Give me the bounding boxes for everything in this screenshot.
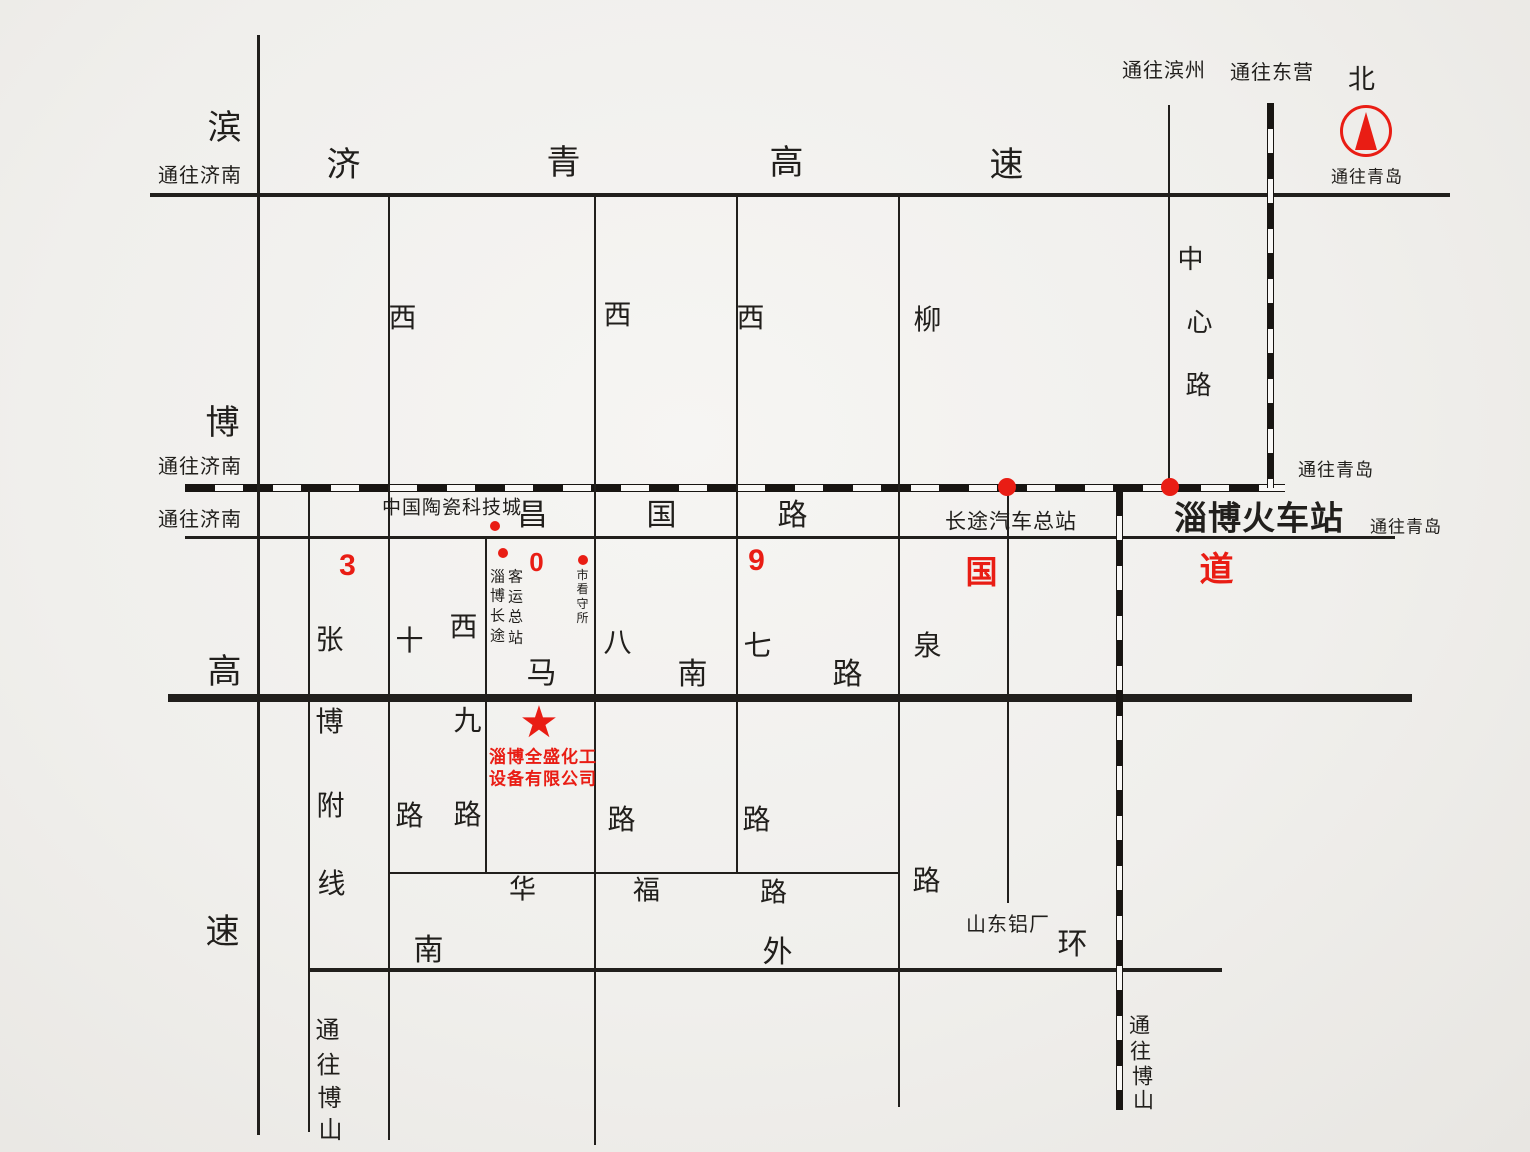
bus-station-street	[1007, 488, 1009, 903]
to-boshan-right-bo: 博	[1132, 1067, 1154, 1088]
xiba-road-char-ba: 八	[603, 629, 632, 657]
jiqing-expwy-char-gao: 高	[770, 146, 805, 180]
company-location-star: ★	[519, 701, 558, 745]
liuquan-road-char-lu: 路	[912, 867, 941, 895]
liuquan-road	[898, 195, 900, 1107]
zhongxin-road-char-lu: 路	[1185, 372, 1212, 398]
route309-digit-0: 0	[529, 549, 544, 575]
to-boshan-left-wang: 往	[317, 1054, 342, 1078]
to-qingdao-changguo: 通往青岛	[1370, 519, 1442, 536]
jiqing-expwy-char-su: 速	[990, 148, 1025, 182]
xijiu-road-char-xi: 西	[449, 613, 478, 641]
route309-digit-9: 9	[748, 546, 766, 576]
zibo-coach-col1-tu: 途	[490, 629, 506, 644]
xijiu-road-char-jiu: 九	[453, 707, 482, 735]
xiba-road	[594, 195, 596, 1145]
ring-road-char-huan: 环	[1058, 930, 1089, 960]
zhangbo-char-xian: 线	[317, 870, 346, 898]
company-name-line1: 淄博全盛化工	[489, 749, 597, 766]
xijiu-road	[485, 537, 487, 873]
railway-north-branch	[1267, 103, 1274, 488]
jiqing-expwy-char-ji: 济	[327, 148, 362, 182]
zhongxin-road-char-zhong: 中	[1177, 246, 1204, 272]
north-char: 北	[1348, 67, 1376, 94]
company-name-line2: 设备有限公司	[489, 771, 597, 788]
to-boshan-right-shan: 山	[1133, 1091, 1155, 1112]
changguo-road-char-lu: 路	[778, 501, 809, 531]
compass-north-needle-icon	[1355, 112, 1377, 150]
liuquan-road-char-quan: 泉	[913, 632, 942, 660]
ring-road-char-nan: 南	[414, 936, 445, 966]
changguo-road-char-chang: 昌	[518, 501, 549, 531]
to-boshan-right-tong: 通	[1129, 1016, 1151, 1037]
zhangbo-char-fu: 附	[316, 792, 345, 820]
to-binzhou: 通往滨州	[1122, 61, 1206, 81]
to-qingdao-railway: 通往青岛	[1298, 461, 1374, 479]
manan-road-thick	[168, 694, 1412, 702]
huafu-road-char-fu: 福	[633, 878, 661, 905]
zibo-coach-col2-ke: 客	[508, 570, 524, 585]
binbo-expwy-char-bin: 滨	[208, 111, 243, 145]
binbo-expwy-char-su: 速	[206, 915, 241, 949]
ring-road-char-wai: 外	[763, 938, 794, 968]
zibo-coach-col1-zi: 淄	[490, 570, 506, 585]
jiqing-expwy-char-qing: 青	[547, 146, 582, 180]
railway-station-junction-dot	[1161, 478, 1179, 496]
detention-house-shi: 市	[576, 569, 589, 581]
xishi-road-char-xi: 西	[388, 304, 417, 332]
zhangbo-char-zhang: 张	[315, 626, 344, 654]
xiqi-road-char-xi: 西	[736, 304, 765, 332]
coach-terminal-dot	[498, 548, 508, 558]
to-jinan-changguo: 通往济南	[158, 510, 242, 530]
jiqing-expressway	[150, 193, 1450, 197]
detention-house-shou: 守	[576, 598, 589, 610]
xiqi-road	[736, 195, 738, 873]
railway-south-branch	[1116, 490, 1123, 1110]
huafu-road-char-lu: 路	[760, 880, 788, 907]
bus-terminal-junction-dot	[998, 478, 1016, 496]
zhangbo-char-bo: 博	[315, 708, 344, 736]
huafu-road-char-hua: 华	[509, 877, 537, 904]
to-jinan-top: 通往济南	[158, 166, 242, 186]
shandong-aluminum-plant: 山东铝厂	[966, 915, 1050, 935]
xiba-road-char-xi: 西	[603, 301, 632, 329]
ceramics-city: 中国陶瓷科技城	[382, 499, 522, 518]
to-qingdao-compass: 通往青岛	[1331, 169, 1403, 186]
manan-road-char-ma: 马	[527, 659, 558, 689]
zhongxin-road-char-xin: 心	[1186, 309, 1213, 335]
zibo-coach-col2-yun: 运	[508, 590, 524, 605]
map-canvas: 济青高速滨博高速通往济南通往济南通往济南通往滨州通往东营北通往青岛通往青岛通往青…	[0, 0, 1530, 1152]
xiba-road-char-lu: 路	[607, 806, 636, 834]
liuquan-road-char-liu: 柳	[913, 306, 942, 334]
to-boshan-left-shan: 山	[319, 1119, 344, 1143]
ceramics-city-dot	[490, 521, 500, 531]
to-boshan-left-bo: 博	[318, 1087, 343, 1111]
detention-house-suo: 所	[576, 612, 589, 624]
huafu-road	[388, 872, 899, 874]
zibo-railway-station: 淄博火车站	[1174, 502, 1344, 535]
to-dongying: 通往东营	[1230, 63, 1314, 83]
route309-char-guo: 国	[965, 556, 998, 588]
manan-road-char-nan: 南	[678, 660, 709, 690]
to-boshan-left-tong: 通	[316, 1019, 341, 1043]
binbo-expwy-char-gao: 高	[208, 655, 243, 689]
zhongxin-road	[1168, 105, 1170, 488]
route309-digit-3: 3	[339, 551, 357, 581]
detention-house-dot	[578, 555, 588, 565]
to-boshan-right-wang: 往	[1130, 1042, 1152, 1063]
changguo-road-char-guo: 国	[647, 501, 678, 531]
xiqi-road-char-qi: 七	[743, 632, 772, 660]
longdistance-bus-terminal: 长途汽车总站	[945, 512, 1077, 533]
xishi-road	[388, 195, 390, 1140]
detention-house-kan: 看	[576, 583, 589, 595]
xishi-road-char-shi: 十	[395, 627, 424, 655]
xishi-road-char-lu: 路	[395, 802, 424, 830]
binbo-expwy-char-bo: 博	[206, 406, 241, 440]
zibo-coach-col1-bo: 博	[490, 589, 506, 604]
zhangbo-branch-line	[308, 490, 310, 1132]
xijiu-road-char-lu: 路	[453, 801, 482, 829]
north-compass	[1340, 105, 1392, 157]
zibo-coach-col2-zong: 总	[508, 610, 524, 625]
manan-road-char-lu: 路	[833, 660, 864, 690]
xiqi-road-char-lu: 路	[742, 806, 771, 834]
zibo-coach-col1-chang: 长	[490, 609, 506, 624]
to-jinan-railway: 通往济南	[158, 457, 242, 477]
binbo-expressway	[257, 35, 260, 1135]
route309-char-dao: 道	[1200, 553, 1235, 587]
zibo-coach-col2-zhan: 站	[508, 631, 524, 646]
